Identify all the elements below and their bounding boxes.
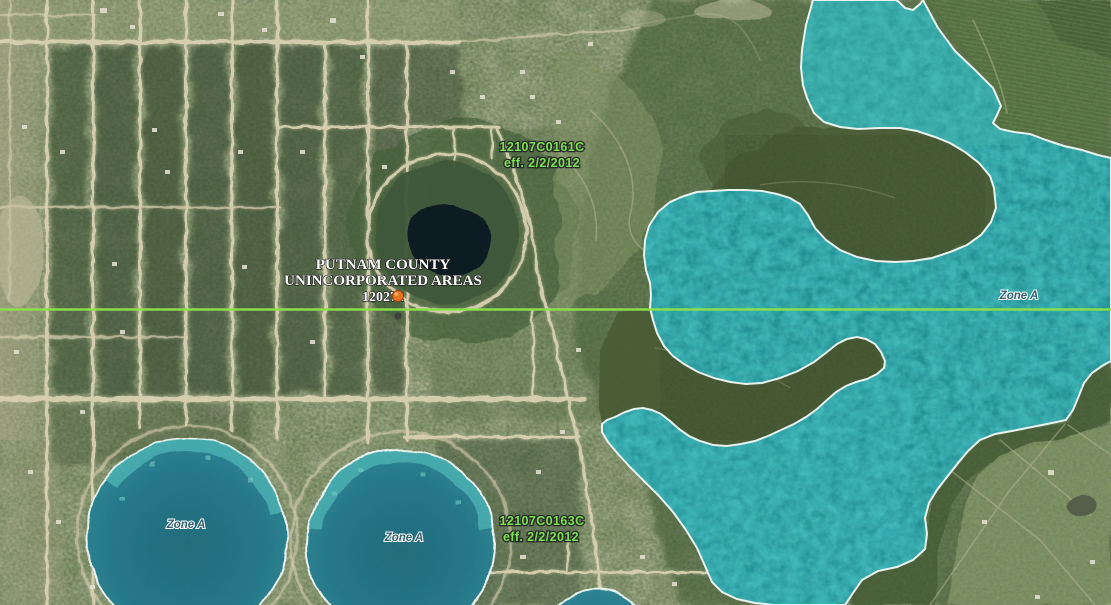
svg-text:eff. 2/2/2012: eff. 2/2/2012 [504,156,580,170]
svg-text:Zone A: Zone A [384,532,424,544]
svg-text:Zone A: Zone A [166,519,206,531]
svg-text:eff. 2/2/2012: eff. 2/2/2012 [503,530,579,544]
svg-text:Zone A: Zone A [999,290,1039,302]
svg-text:12107C0163C: 12107C0163C [499,514,584,528]
svg-text:UNINCORPORATED AREAS: UNINCORPORATED AREAS [284,273,482,289]
svg-text:PUTNAM COUNTY: PUTNAM COUNTY [316,257,451,273]
svg-text:12107C0161C: 12107C0161C [499,140,584,154]
